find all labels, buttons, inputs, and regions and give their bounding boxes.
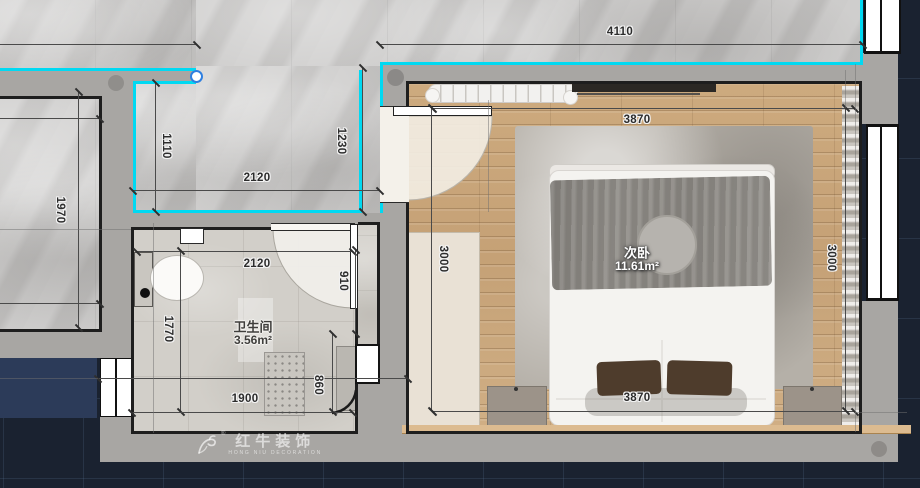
- dim-bedroom-depth-right: 3000: [825, 245, 837, 272]
- dim-line-bedroom-left: [431, 108, 432, 411]
- ext-line-bottom-left-h: [0, 378, 98, 379]
- dim-line-left-room: [78, 92, 79, 328]
- wall-column-dot-right: [871, 441, 887, 457]
- bull-logo-icon: [196, 433, 220, 457]
- left-wall-bottom: [0, 330, 102, 358]
- watermark-subtitle: HONG NIU DECORATION: [228, 450, 322, 456]
- dim-bedroom-width-bottom: 3870: [624, 392, 651, 404]
- ext-line-bathroom-top-h: [0, 229, 131, 230]
- dim-line-hallway-width: [155, 83, 156, 212]
- dim-line-hallway-length: [133, 190, 380, 191]
- dim-left-room-depth: 1970: [54, 197, 66, 224]
- bedroom-top-wall-band: [381, 65, 863, 82]
- ext-line-door-edge: [488, 100, 489, 212]
- window-lower-right: [866, 124, 899, 301]
- bathroom-right-jamb: [358, 222, 380, 345]
- window-mullion: [880, 127, 882, 298]
- dim-line-top-left-partial: [0, 44, 197, 45]
- dim-hallway-width: 1110: [160, 133, 172, 159]
- dim-line-entry-depth: [362, 68, 363, 212]
- highlight-line-bedroom-right: [860, 0, 863, 64]
- highlight-line-hall-top: [133, 81, 196, 84]
- corridor-wall: [100, 70, 135, 358]
- dim-line-bathroom-door-wall: [355, 250, 356, 334]
- dim-bedroom-depth-left: 3000: [437, 246, 449, 273]
- column-dot-bedroom-entry: [387, 69, 404, 86]
- ext-line-left-room-upper: [0, 118, 100, 119]
- dim-line-shower: [332, 334, 333, 412]
- dim-bedroom-width-top: 3870: [624, 114, 651, 126]
- door-divider-line: [115, 359, 117, 416]
- dim-line-total-top: [380, 44, 863, 45]
- window-upper-right: [864, 0, 901, 54]
- dim-line-bathroom-bottom: [132, 412, 353, 413]
- dim-entry-depth: 1230: [335, 128, 347, 155]
- dim-line-bedroom-bottom: [433, 411, 855, 412]
- floor-plan-canvas: 4110 1110 2120 1230 1970 2120 910 1770 1…: [0, 0, 920, 488]
- ext-line-bedroom-right: [855, 64, 856, 432]
- watermark-registered: ®: [221, 431, 225, 437]
- marble-floor-top-band: [196, 0, 863, 66]
- corridor-wall-bottom: [100, 415, 135, 432]
- dim-bathroom-width: 2120: [244, 258, 271, 270]
- bathroom-area-label: 3.56m²: [234, 333, 272, 347]
- column-dot-corridor: [108, 75, 124, 91]
- ext-line-bedroom-right-h: [845, 70, 846, 108]
- highlight-line-hall-bottom: [133, 210, 361, 213]
- right-wall-lower: [858, 301, 898, 433]
- ext-line-bathroom-left: [153, 223, 154, 433]
- wall-endpoint-marker-icon: [190, 70, 203, 83]
- bathroom-door-leaf: [350, 224, 358, 309]
- ext-line-left-room-lower: [0, 303, 100, 304]
- highlight-line-top-left: [0, 68, 196, 71]
- dim-bathroom-door-wall: 910: [337, 271, 349, 291]
- watermark: ® 红牛装饰 HONG NIU DECORATION: [196, 433, 322, 457]
- dim-line-bedroom-top: [433, 108, 855, 109]
- highlight-line-bedroom-top: [380, 62, 863, 65]
- right-wall-upper: [860, 53, 898, 124]
- bathroom-wall-niche: [180, 228, 204, 244]
- dim-line-bathroom-width: [137, 251, 353, 252]
- bedroom-area-label: 11.61m²: [615, 259, 659, 273]
- wall-strip-left: [0, 83, 101, 96]
- dim-hallway-length: 2120: [244, 172, 271, 184]
- bedroom-door-opening: [380, 106, 409, 203]
- window-mullion: [880, 0, 882, 51]
- left-room: [0, 96, 102, 332]
- dim-total-top: 4110: [607, 26, 633, 38]
- ext-line-bottom-right-h: [855, 412, 907, 413]
- marble-floor-top-left: [0, 0, 197, 70]
- dim-line-bottom-left: [98, 378, 408, 379]
- dim-line-bedroom-right: [845, 108, 846, 411]
- dim-line-bathroom-depth: [180, 251, 181, 412]
- navy-block: [0, 357, 97, 418]
- dim-bathroom-depth: 1770: [162, 316, 174, 343]
- bathroom-door-opening: [271, 223, 355, 231]
- dim-shower-width: 860: [312, 375, 324, 395]
- watermark-brand: 红牛装饰: [235, 434, 315, 449]
- dim-bathroom-bottom: 1900: [232, 393, 259, 405]
